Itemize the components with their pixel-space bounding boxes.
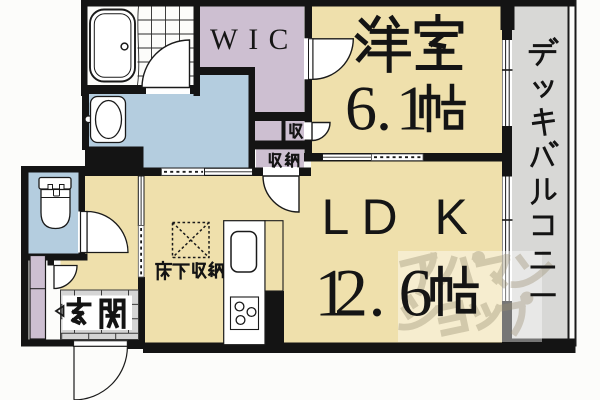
svg-text:6.1: 6.1 xyxy=(345,73,428,144)
svg-text:WIC: WIC xyxy=(210,24,299,56)
svg-text:12.6: 12.6 xyxy=(315,255,433,331)
svg-text:LDK: LDK xyxy=(322,189,468,245)
